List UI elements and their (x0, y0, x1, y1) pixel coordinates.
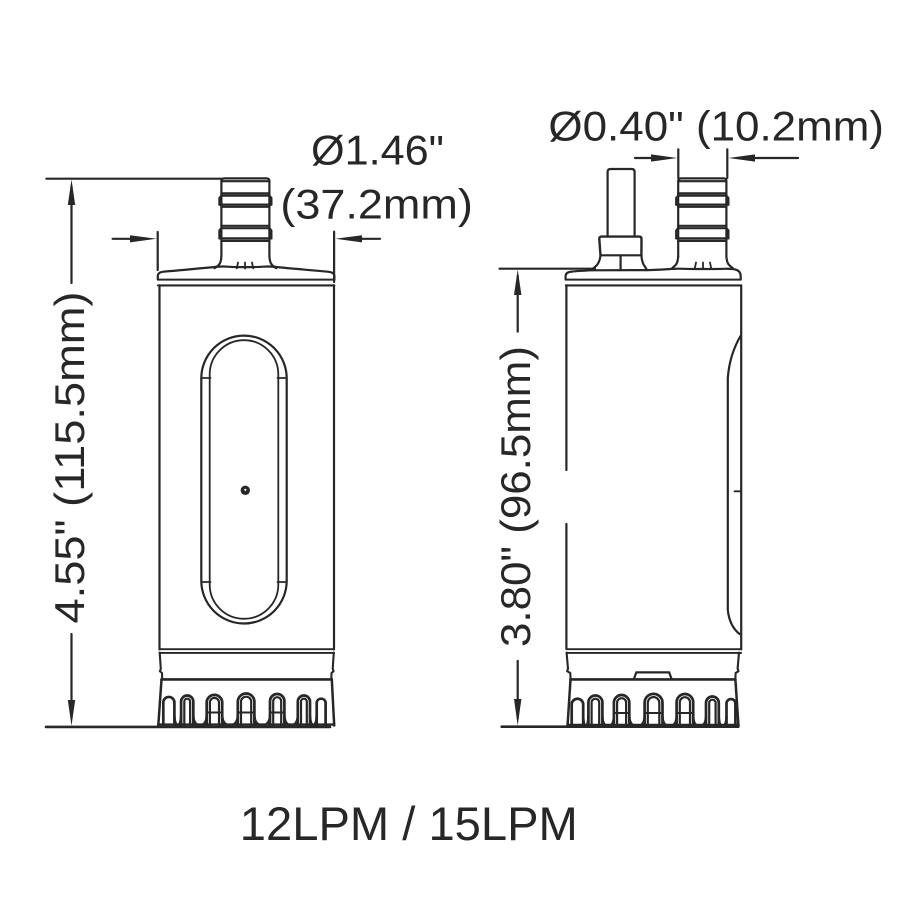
svg-text:4.55" (115.5mm): 4.55" (115.5mm) (46, 292, 93, 624)
svg-text:Ø0.40" (10.2mm): Ø0.40" (10.2mm) (548, 103, 884, 150)
svg-text:(37.2mm): (37.2mm) (280, 180, 473, 227)
svg-text:3.80" (96.5mm): 3.80" (96.5mm) (492, 346, 539, 647)
svg-text:Ø1.46": Ø1.46" (311, 127, 444, 174)
svg-text:12LPM / 15LPM: 12LPM / 15LPM (240, 797, 578, 850)
